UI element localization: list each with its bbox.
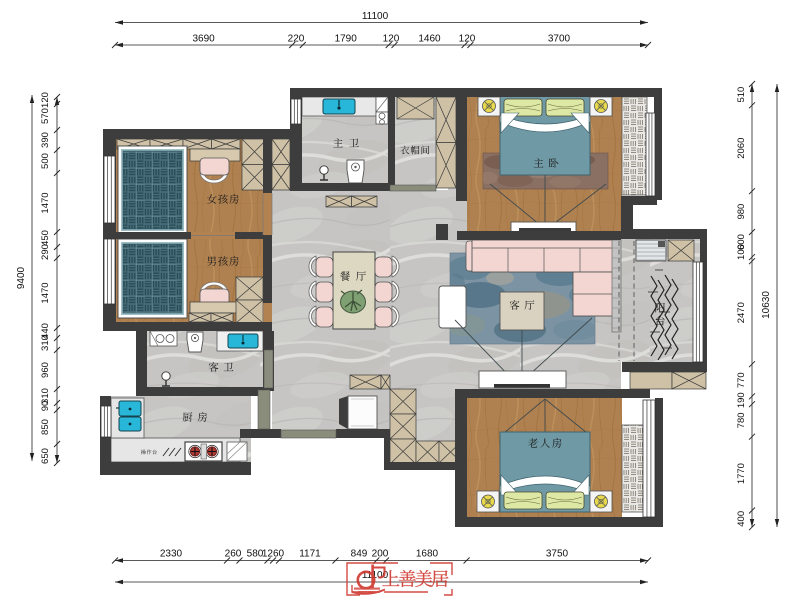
svg-text:650: 650 <box>40 448 51 464</box>
svg-text:1770: 1770 <box>736 463 747 484</box>
svg-text:11100: 11100 <box>362 11 389 22</box>
svg-text:10630: 10630 <box>761 291 772 319</box>
svg-text:220: 220 <box>288 34 305 45</box>
svg-text:120: 120 <box>40 92 51 108</box>
svg-text:770: 770 <box>736 372 747 388</box>
svg-text:1680: 1680 <box>416 549 439 560</box>
svg-text:120: 120 <box>383 34 400 45</box>
svg-text:9400: 9400 <box>16 266 27 289</box>
svg-text:290: 290 <box>40 244 51 260</box>
svg-text:780: 780 <box>736 412 747 428</box>
svg-text:260: 260 <box>225 549 242 560</box>
svg-text:3700: 3700 <box>548 34 571 45</box>
svg-text:500: 500 <box>40 153 51 169</box>
svg-text:1260: 1260 <box>262 549 285 560</box>
svg-text:1171: 1171 <box>299 549 321 560</box>
svg-text:200: 200 <box>372 549 389 560</box>
svg-text:850: 850 <box>40 419 51 435</box>
svg-text:390: 390 <box>40 132 51 148</box>
svg-text:3750: 3750 <box>546 549 569 560</box>
svg-text:120: 120 <box>459 34 476 45</box>
svg-text:100: 100 <box>736 244 747 260</box>
svg-text:510: 510 <box>736 87 747 103</box>
svg-text:3690: 3690 <box>192 34 215 45</box>
svg-text:2060: 2060 <box>736 138 747 159</box>
svg-text:2330: 2330 <box>160 549 183 560</box>
svg-text:310: 310 <box>40 335 51 351</box>
svg-text:1470: 1470 <box>40 282 51 303</box>
svg-text:90: 90 <box>40 401 51 412</box>
svg-text:570: 570 <box>40 108 51 124</box>
svg-text:1790: 1790 <box>335 34 358 45</box>
svg-text:450: 450 <box>40 230 51 246</box>
svg-text:1460: 1460 <box>418 34 441 45</box>
svg-text:190: 190 <box>736 392 747 408</box>
svg-text:960: 960 <box>40 362 51 378</box>
svg-text:980: 980 <box>736 204 747 220</box>
svg-text:400: 400 <box>736 511 747 527</box>
svg-text:849: 849 <box>351 549 368 560</box>
svg-text:1470: 1470 <box>40 192 51 213</box>
svg-text:2470: 2470 <box>736 302 747 323</box>
